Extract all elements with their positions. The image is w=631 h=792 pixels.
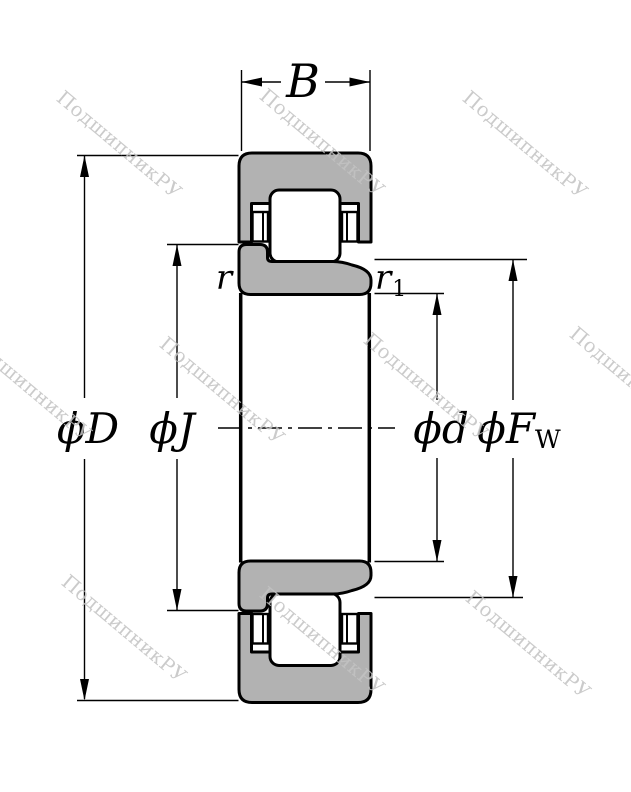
arrowhead-up — [509, 260, 518, 282]
watermark-text: ПодшипникРУ — [458, 86, 592, 204]
arrowhead-up — [80, 156, 89, 178]
dim-label-r1: r1 — [375, 258, 406, 302]
arrowhead-up — [173, 245, 182, 267]
dim-label-r: r — [216, 258, 234, 298]
arrowhead-down — [509, 576, 518, 598]
dim-label-B: B — [285, 54, 320, 108]
dim-label-phiJ: ϕJ — [149, 404, 197, 453]
bearing-drawing-canvas: B ϕD ϕJ ϕd ϕFW r — [0, 0, 631, 792]
roller-section — [270, 190, 340, 262]
cage-bar-right — [342, 212, 358, 242]
cage-bar-left — [253, 212, 269, 242]
arrowhead-right — [350, 78, 371, 87]
watermark-text: ПодшипникРУ — [461, 586, 595, 704]
bearing-diagram: B ϕD ϕJ ϕd ϕFW r — [0, 0, 631, 792]
arrowhead-down — [80, 679, 89, 701]
arrowhead-down — [173, 589, 182, 611]
watermark-text: ПодшипникРУ — [565, 322, 631, 440]
watermark-text: ПодшипникРУ — [57, 570, 191, 688]
watermark-text: ПодшипникРУ — [52, 86, 186, 204]
arrowhead-down — [433, 540, 442, 562]
arrowhead-up — [433, 294, 442, 316]
arrowhead-left — [242, 78, 263, 87]
watermark-text: ПодшипникРУ — [0, 328, 96, 446]
